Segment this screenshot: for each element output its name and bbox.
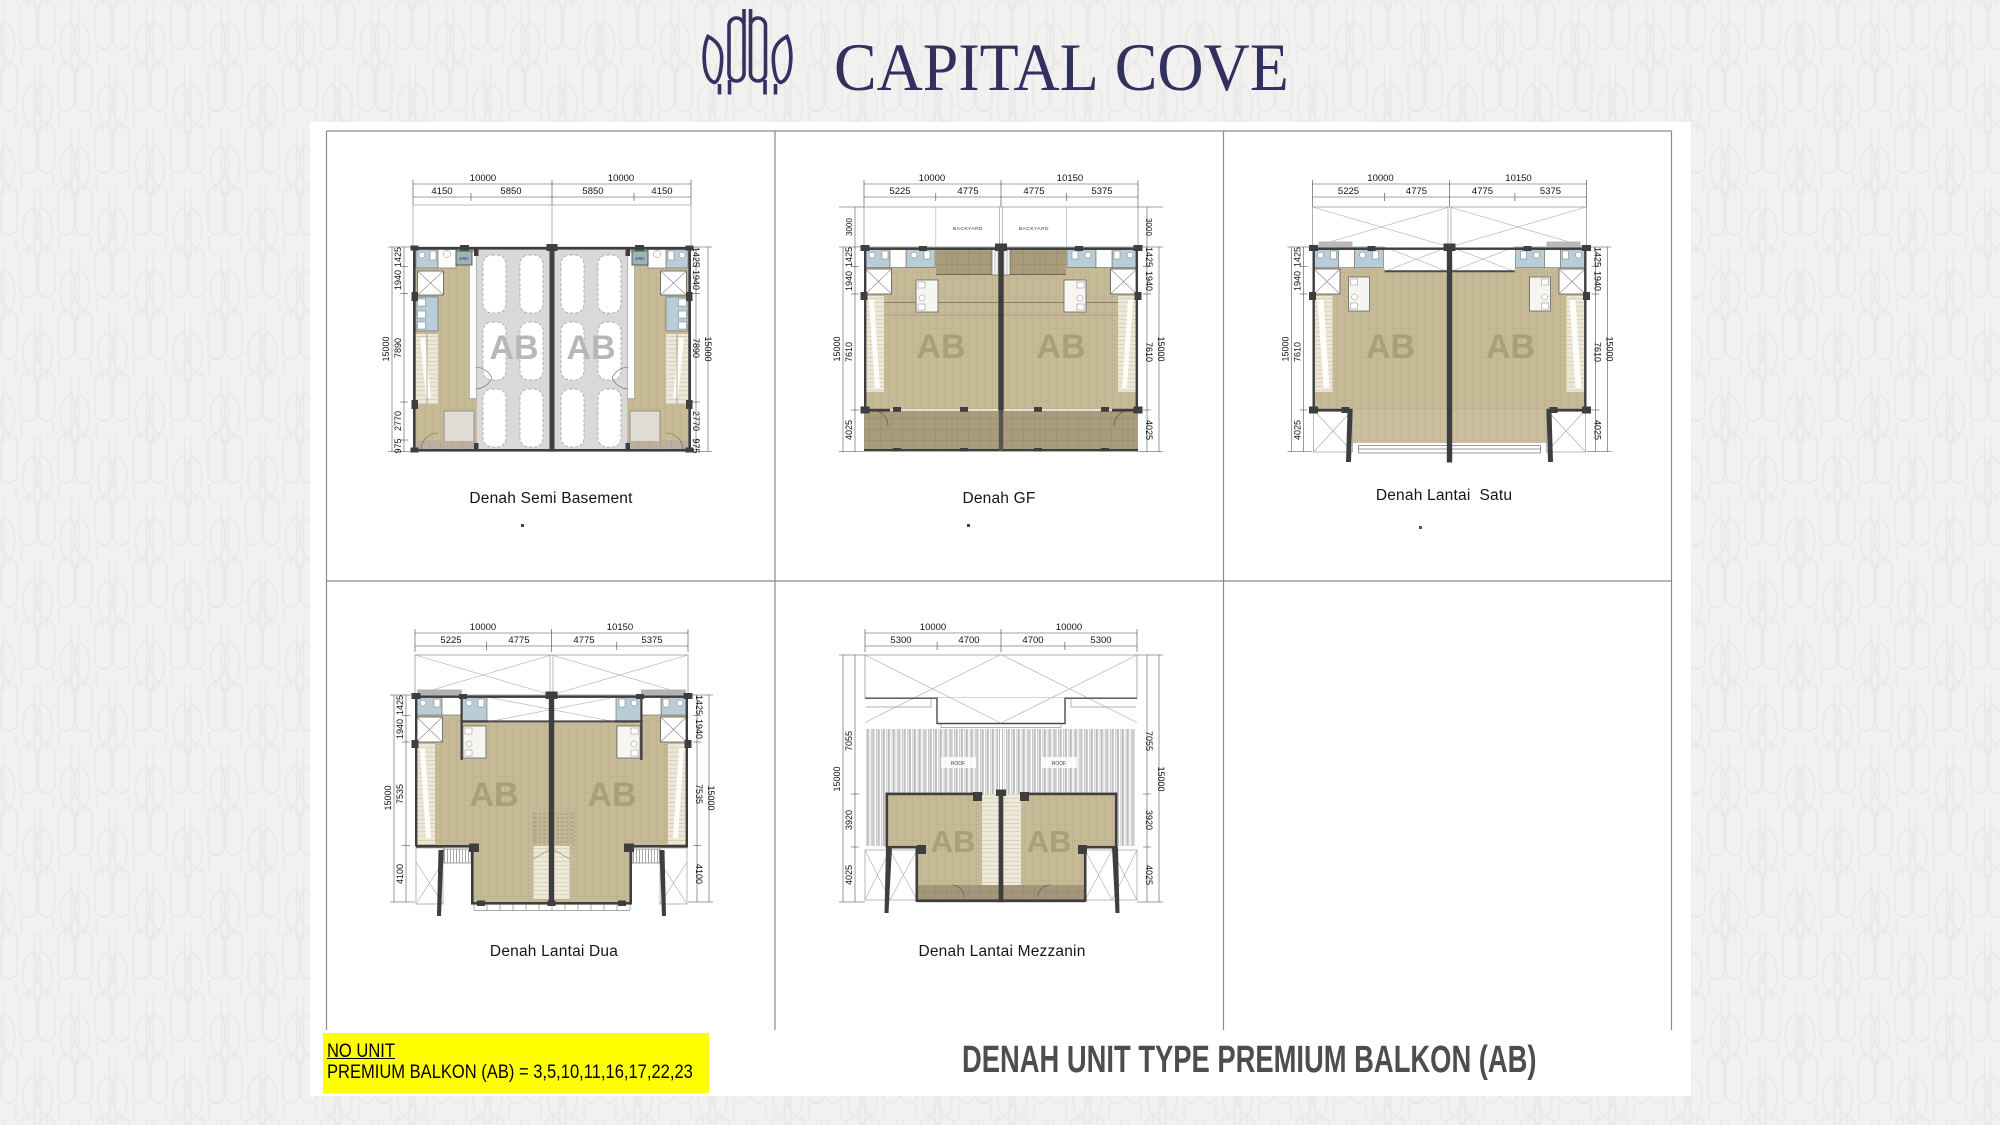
svg-text:ROOF: ROOF <box>951 761 965 767</box>
svg-text:1940: 1940 <box>1592 271 1602 291</box>
svg-text:5225: 5225 <box>440 635 461 646</box>
svg-text:AB: AB <box>587 776 636 814</box>
svg-text:2770: 2770 <box>393 411 403 431</box>
svg-text:AB: AB <box>1036 328 1085 366</box>
svg-text:AB: AB <box>489 329 538 367</box>
svg-text:JAN.: JAN. <box>635 256 645 261</box>
svg-text:5850: 5850 <box>582 186 603 197</box>
svg-text:4775: 4775 <box>1023 186 1044 197</box>
svg-text:4150: 4150 <box>651 186 672 197</box>
svg-text:1425: 1425 <box>691 247 701 267</box>
svg-text:15000: 15000 <box>706 785 716 810</box>
svg-text:10000: 10000 <box>608 173 634 184</box>
svg-text:975: 975 <box>691 438 701 453</box>
svg-text:AB: AB <box>566 329 615 367</box>
svg-text:15000: 15000 <box>1156 336 1166 361</box>
svg-text:AB: AB <box>469 776 518 814</box>
svg-text:4025: 4025 <box>844 865 854 885</box>
svg-text:4775: 4775 <box>573 635 594 646</box>
svg-text:10000: 10000 <box>1367 173 1393 184</box>
svg-text:ROOF: ROOF <box>1052 761 1066 767</box>
svg-text:7890: 7890 <box>393 338 403 358</box>
svg-text:5850: 5850 <box>500 186 521 197</box>
svg-text:5300: 5300 <box>1090 635 1111 646</box>
svg-text:1425: 1425 <box>694 695 704 715</box>
svg-text:5225: 5225 <box>1337 186 1358 197</box>
svg-text:15000: 15000 <box>832 766 842 791</box>
svg-text:5375: 5375 <box>1091 186 1112 197</box>
svg-text:1425: 1425 <box>844 247 854 267</box>
svg-text:1940: 1940 <box>691 270 701 290</box>
svg-text:1425: 1425 <box>1144 247 1154 267</box>
svg-text:AB: AB <box>931 824 976 859</box>
svg-text:4100: 4100 <box>694 864 704 884</box>
svg-text:1425: 1425 <box>1292 247 1302 267</box>
svg-text:5225: 5225 <box>889 186 910 197</box>
svg-text:15000: 15000 <box>832 336 842 361</box>
svg-text:BACKYARD: BACKYARD <box>1019 226 1049 232</box>
svg-text:4700: 4700 <box>958 635 979 646</box>
svg-text:AB: AB <box>916 328 965 366</box>
svg-text:4150: 4150 <box>431 186 452 197</box>
svg-text:4775: 4775 <box>957 186 978 197</box>
svg-text:15000: 15000 <box>383 785 393 810</box>
svg-text:10000: 10000 <box>1056 622 1082 633</box>
svg-text:1425: 1425 <box>395 695 405 715</box>
svg-text:15000: 15000 <box>703 336 713 361</box>
svg-text:AB: AB <box>1365 328 1414 366</box>
svg-text:1940: 1940 <box>395 719 405 739</box>
svg-text:1940: 1940 <box>1144 271 1154 291</box>
svg-text:2770: 2770 <box>691 411 701 431</box>
svg-text:4025: 4025 <box>1292 420 1302 440</box>
svg-text:15000: 15000 <box>1280 336 1290 361</box>
svg-text:4025: 4025 <box>1592 420 1602 440</box>
svg-text:7610: 7610 <box>844 342 854 362</box>
svg-text:BACKYARD: BACKYARD <box>953 226 983 232</box>
svg-text:4025: 4025 <box>1144 865 1154 885</box>
svg-text:7610: 7610 <box>1144 342 1154 362</box>
svg-text:1425: 1425 <box>393 247 403 267</box>
svg-text:15000: 15000 <box>1604 336 1614 361</box>
svg-text:4700: 4700 <box>1022 635 1043 646</box>
svg-text:4775: 4775 <box>508 635 529 646</box>
svg-text:4100: 4100 <box>395 864 405 884</box>
svg-text:AB: AB <box>1027 824 1072 859</box>
svg-text:3920: 3920 <box>1144 810 1154 830</box>
svg-text:1425: 1425 <box>1592 247 1602 267</box>
svg-text:7610: 7610 <box>1592 342 1602 362</box>
svg-text:1940: 1940 <box>694 719 704 739</box>
svg-text:10150: 10150 <box>1057 173 1083 184</box>
svg-text:3000: 3000 <box>845 218 854 236</box>
svg-text:10150: 10150 <box>607 622 633 633</box>
svg-text:5375: 5375 <box>1539 186 1560 197</box>
svg-text:10000: 10000 <box>470 622 496 633</box>
svg-text:7535: 7535 <box>395 784 405 804</box>
svg-text:AB: AB <box>1485 328 1534 366</box>
svg-text:1940: 1940 <box>1292 271 1302 291</box>
svg-text:15000: 15000 <box>1156 766 1166 791</box>
svg-text:JAN.: JAN. <box>459 256 469 261</box>
svg-text:7610: 7610 <box>1292 342 1302 362</box>
svg-text:3920: 3920 <box>844 810 854 830</box>
svg-text:5300: 5300 <box>890 635 911 646</box>
svg-text:4775: 4775 <box>1471 186 1492 197</box>
svg-text:7535: 7535 <box>694 784 704 804</box>
svg-text:7890: 7890 <box>691 338 701 358</box>
svg-text:7055: 7055 <box>844 731 854 751</box>
svg-text:4775: 4775 <box>1405 186 1426 197</box>
svg-text:1940: 1940 <box>393 270 403 290</box>
svg-text:15000: 15000 <box>381 336 391 361</box>
svg-text:4025: 4025 <box>844 420 854 440</box>
svg-text:1940: 1940 <box>844 271 854 291</box>
svg-text:10000: 10000 <box>920 622 946 633</box>
svg-text:10150: 10150 <box>1505 173 1531 184</box>
svg-text:3000: 3000 <box>1144 218 1153 236</box>
svg-text:4025: 4025 <box>1144 420 1154 440</box>
svg-text:5375: 5375 <box>641 635 662 646</box>
svg-text:10000: 10000 <box>919 173 945 184</box>
svg-text:10000: 10000 <box>470 173 496 184</box>
svg-text:7055: 7055 <box>1144 731 1154 751</box>
svg-text:975: 975 <box>393 438 403 453</box>
